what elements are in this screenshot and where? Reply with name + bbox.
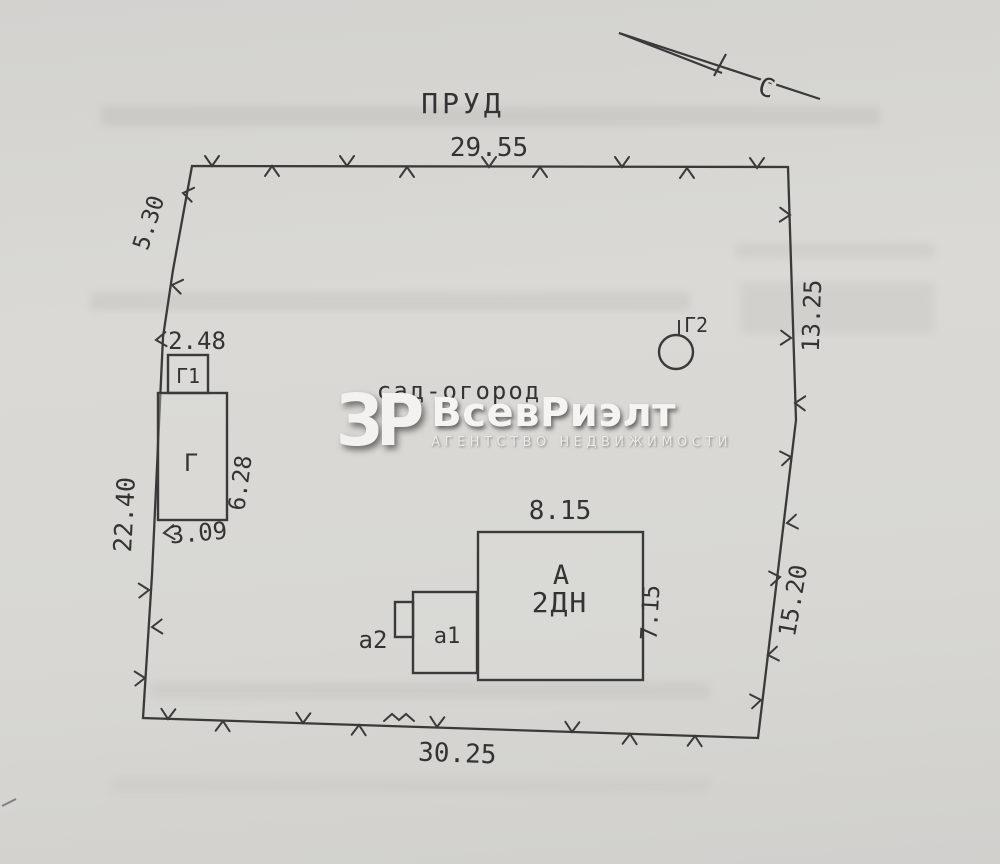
dim-top: 29.55 bbox=[450, 133, 528, 163]
fence-tick bbox=[205, 156, 219, 166]
annex-a2-outline bbox=[395, 602, 413, 637]
fence-tick bbox=[135, 671, 146, 686]
well-g2-circle bbox=[659, 335, 693, 369]
fence-tick bbox=[139, 583, 150, 598]
dim-top-left: 5.30 bbox=[128, 192, 170, 253]
north-label: С bbox=[754, 72, 778, 105]
scanned-site-plan: { "drawing": { "north_label": "С", "pond… bbox=[0, 0, 1000, 864]
fence-tick bbox=[216, 721, 230, 731]
house-type-label: 2ДН bbox=[532, 586, 589, 619]
dim-left: 22.40 bbox=[108, 476, 141, 553]
dim-bottom: 30.25 bbox=[418, 738, 497, 771]
annex-a2-label: а2 bbox=[359, 626, 388, 654]
fence-tick bbox=[152, 619, 163, 634]
fence-tick bbox=[615, 157, 629, 167]
north-arrow: С bbox=[619, 33, 820, 105]
fence-tick bbox=[296, 713, 310, 723]
dim-shed-g1-width: 2.48 bbox=[168, 327, 226, 355]
fence-tick bbox=[171, 278, 183, 294]
fence-tick bbox=[400, 167, 414, 177]
paper-stray-mark bbox=[2, 799, 16, 806]
shed-g1-label: Г1 bbox=[176, 364, 200, 388]
north-arrow-barb bbox=[619, 33, 722, 73]
dim-shed-g-width: 3.09 bbox=[168, 517, 228, 550]
fence-tick bbox=[680, 168, 694, 178]
garden-label: сад-огород bbox=[377, 377, 542, 405]
pond-label: ПРУД bbox=[421, 87, 504, 120]
gate-mark bbox=[384, 714, 414, 721]
dim-house-width: 8.15 bbox=[529, 496, 592, 526]
fence-tick bbox=[265, 166, 279, 176]
fence-tick bbox=[688, 736, 702, 746]
fence-tick bbox=[430, 717, 444, 727]
fence-tick bbox=[340, 156, 354, 166]
fence-tick bbox=[155, 332, 166, 347]
dim-right-upper: 13.25 bbox=[797, 279, 828, 352]
well-g2-label: Г2 bbox=[684, 313, 708, 337]
shed-g-label: Г bbox=[184, 449, 198, 477]
fence-tick bbox=[781, 331, 791, 345]
fence-tick bbox=[750, 693, 762, 708]
fence-tick bbox=[533, 167, 547, 177]
fence-tick bbox=[769, 570, 781, 585]
dim-house-height: 7.15 bbox=[637, 584, 666, 641]
dim-right-lower: 15.20 bbox=[773, 563, 813, 639]
fence-tick bbox=[623, 734, 637, 744]
fence-tick bbox=[786, 515, 798, 530]
site-plan-drawing: С ПРУД 29.55 5.30 2.48 Г1 Г 6.28 3.09 22… bbox=[0, 0, 1000, 864]
dim-shed-g-height: 6.28 bbox=[224, 454, 257, 512]
annex-a1-label: а1 bbox=[434, 624, 461, 649]
